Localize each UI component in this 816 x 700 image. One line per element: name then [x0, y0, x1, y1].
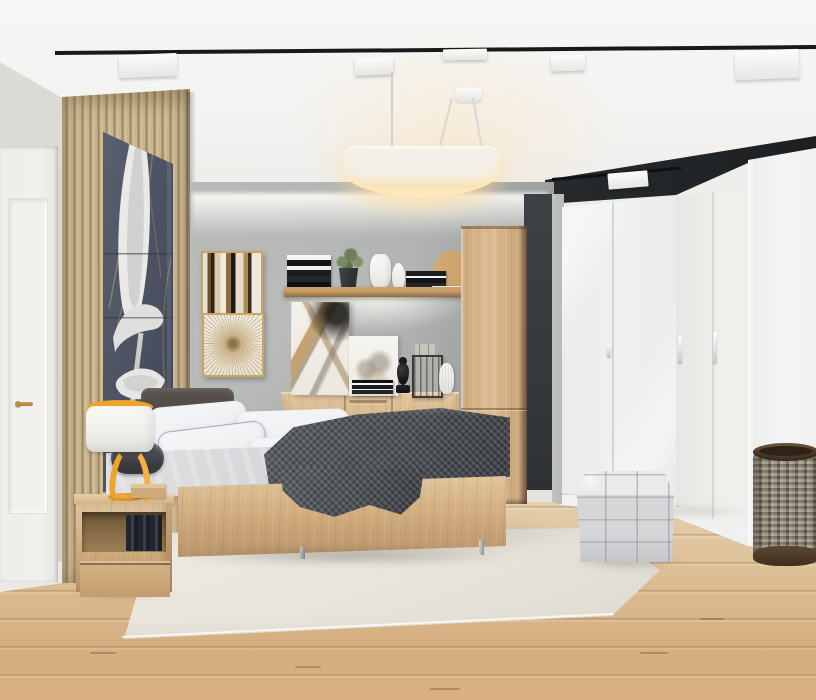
finial-body [397, 363, 409, 385]
corner-handle-left-icon [678, 335, 682, 363]
dresser [281, 392, 459, 488]
nightstand-body [76, 503, 172, 592]
dresser-door-seam [391, 396, 393, 488]
pendant-lamp [300, 40, 560, 230]
dresser-book-stack [352, 380, 393, 396]
bed-shadow-on-rug [150, 515, 580, 557]
basket-body [753, 452, 816, 560]
track-light-1 [119, 53, 178, 78]
floor-plank-joint [295, 666, 321, 668]
corner-wardrobe-angled [676, 185, 748, 529]
storage-box [131, 484, 165, 498]
framed-art-abstract [201, 251, 263, 315]
nightstand [74, 494, 174, 594]
black-finial-decor [395, 357, 411, 394]
pendant-cable [438, 98, 453, 151]
dresser-drawer-seam [344, 432, 392, 434]
tall-cabinet [461, 226, 527, 504]
cabinet-seam [461, 408, 527, 410]
pouf [575, 469, 676, 564]
ridged-white-vase [439, 363, 454, 394]
floor-plank-joint [430, 688, 460, 690]
basket-opening [759, 446, 813, 456]
corner-handle-right-icon [713, 332, 717, 363]
shelf-books-inside [126, 515, 162, 551]
leaning-canvas-abstract [291, 302, 350, 396]
pendant-cable [472, 98, 483, 152]
floor-plank-joint [90, 652, 116, 654]
track-light-5 [735, 49, 800, 80]
basket-rim-bottom [753, 546, 816, 566]
floor-plank-joint [700, 618, 724, 620]
shelf-vase-small [392, 263, 405, 290]
lamp-shade [86, 406, 154, 452]
door-handle-lever [19, 402, 33, 406]
nightstand-drawer [80, 561, 170, 597]
wicker-basket [753, 443, 816, 570]
bedroom-scene: 3D render of a bedroom: oak platform bed… [0, 0, 816, 700]
dark-panel-baseboard [524, 490, 554, 504]
door-panel [8, 198, 48, 514]
cabinet-bottom-shadow [461, 498, 527, 504]
cabinet-door-gap [519, 226, 527, 504]
framed-art-starburst [202, 313, 264, 377]
dresser-drawer-groove [349, 400, 387, 403]
wall-shelf-board [284, 287, 472, 297]
pendant-drum [344, 146, 499, 197]
pendant-canopy [455, 88, 482, 102]
finial-base [396, 385, 410, 393]
dark-wall-panel [524, 194, 554, 504]
shelf-books-left [287, 255, 331, 290]
pendant-rod [391, 72, 393, 150]
entry-door [0, 146, 58, 582]
shelf-vase-large [370, 254, 391, 290]
floor-plank-joint [640, 652, 668, 654]
dresser-door-seam [344, 396, 346, 488]
wardrobe-handle-icon [607, 344, 611, 357]
wardrobe-door-seam [612, 202, 614, 512]
